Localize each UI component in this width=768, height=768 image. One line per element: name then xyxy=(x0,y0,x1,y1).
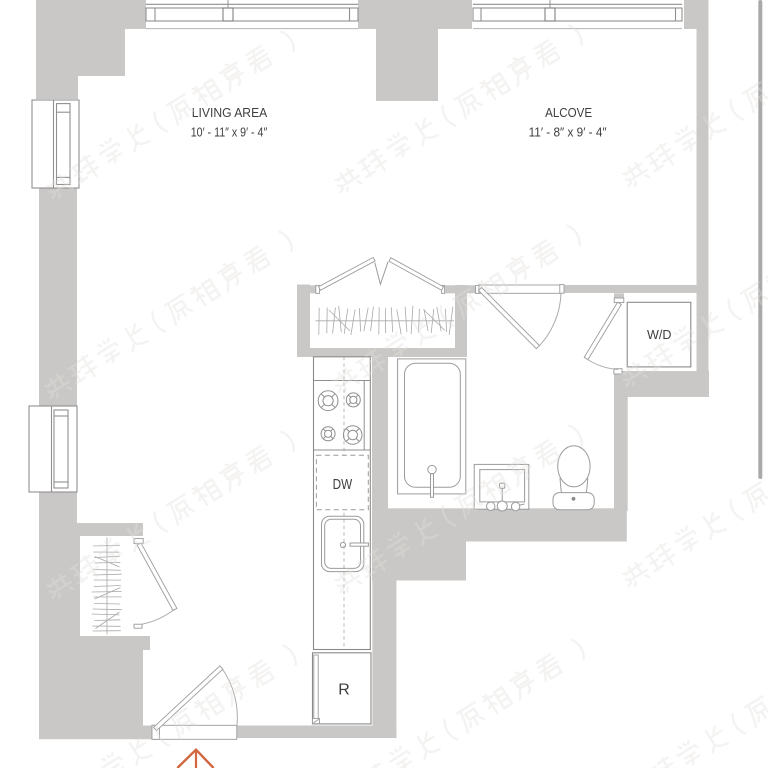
svg-text:R: R xyxy=(338,681,350,698)
svg-text:W/D: W/D xyxy=(647,327,672,342)
svg-text:11′ - 8″ x 9′ - 4″: 11′ - 8″ x 9′ - 4″ xyxy=(529,125,607,140)
svg-text:LIVING AREA: LIVING AREA xyxy=(192,105,268,120)
svg-text:DW: DW xyxy=(333,477,353,493)
svg-text:ALCOVE: ALCOVE xyxy=(545,105,592,120)
svg-text:10′ - 11″ x 9′ - 4″: 10′ - 11″ x 9′ - 4″ xyxy=(191,125,268,140)
